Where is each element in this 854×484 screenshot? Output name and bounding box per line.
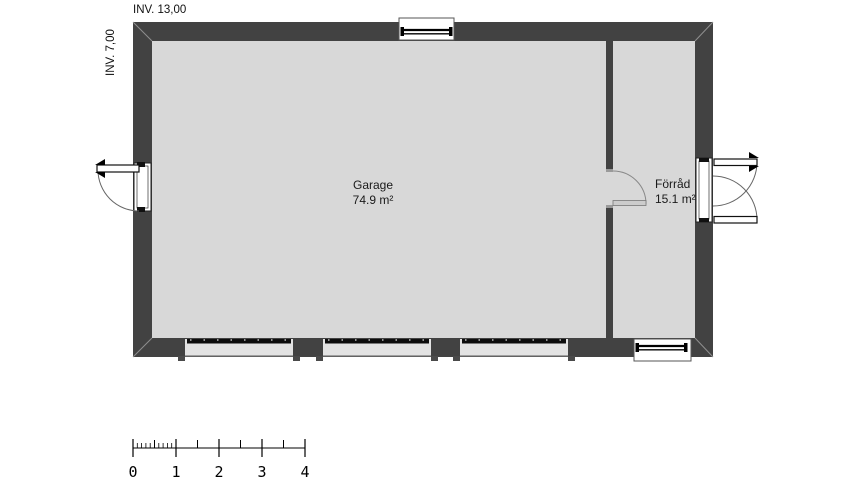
scale-number-3: 3 bbox=[257, 463, 266, 481]
room-area: 74.9 m² bbox=[353, 193, 394, 207]
door-leaf bbox=[613, 201, 646, 206]
window-end-block bbox=[636, 343, 640, 352]
jamb-tab bbox=[178, 356, 185, 361]
door-leaf bbox=[714, 159, 757, 166]
jamb-tab bbox=[431, 356, 438, 361]
garage-door-1 bbox=[178, 339, 300, 361]
partition-wall-cap-top bbox=[606, 169, 613, 172]
forrad-room-label: Förråd 15.1 m² bbox=[655, 177, 696, 206]
garage-door-panel bbox=[325, 339, 429, 344]
right-double-door bbox=[696, 152, 759, 223]
jamb-tab bbox=[453, 356, 460, 361]
garage-door-panel bbox=[187, 339, 291, 344]
window-end-block bbox=[449, 27, 453, 36]
scale-number-4: 4 bbox=[300, 463, 309, 481]
jamb-tab bbox=[568, 356, 575, 361]
scale-number-2: 2 bbox=[214, 463, 223, 481]
room-name: Garage bbox=[353, 178, 393, 192]
door-swing-arc bbox=[713, 176, 757, 220]
garage-door-3 bbox=[453, 339, 575, 361]
building bbox=[133, 22, 713, 357]
door-leaf bbox=[97, 165, 139, 172]
left-entry-door bbox=[95, 159, 151, 212]
scale-number-0: 0 bbox=[128, 463, 137, 481]
window-end-block bbox=[401, 27, 405, 36]
height-dimension-label: INV. 7,00 bbox=[105, 29, 117, 76]
jamb-tab bbox=[316, 356, 323, 361]
door-swing-arrow-icon bbox=[749, 152, 759, 158]
door-swing-arrow-icon bbox=[95, 159, 105, 165]
jamb-tab bbox=[293, 356, 300, 361]
partition-wall-cap-bottom bbox=[606, 205, 613, 208]
window-end-block bbox=[684, 343, 688, 352]
floor-area bbox=[152, 41, 695, 338]
door-jamb-block bbox=[699, 218, 709, 222]
floor-plan: INV. 13,00 INV. 7,00 Garage 74.9 m² Förr… bbox=[0, 0, 854, 484]
door-leaf bbox=[714, 217, 757, 224]
door-swing-arrow-icon bbox=[95, 172, 105, 178]
partition-wall-lower bbox=[606, 205, 613, 338]
floor-plan-canvas: INV. 13,00 INV. 7,00 Garage 74.9 m² Förr… bbox=[0, 0, 854, 484]
garage-door-2 bbox=[316, 339, 438, 361]
bottom-window bbox=[634, 339, 691, 361]
door-jamb-block bbox=[699, 158, 709, 162]
door-frame-inner bbox=[699, 161, 709, 219]
width-dimension-label: INV. 13,00 bbox=[133, 4, 186, 16]
garage-door-panel bbox=[462, 339, 566, 344]
partition-wall-upper bbox=[606, 41, 613, 172]
scale-bar: 0 1 2 3 4 bbox=[128, 439, 309, 481]
scale-number-1: 1 bbox=[171, 463, 180, 481]
top-window bbox=[399, 18, 454, 40]
room-area: 15.1 m² bbox=[655, 192, 696, 206]
garage-room-label: Garage 74.9 m² bbox=[353, 178, 394, 207]
door-swing-arrow-icon bbox=[749, 166, 759, 172]
room-name: Förråd bbox=[655, 177, 690, 191]
